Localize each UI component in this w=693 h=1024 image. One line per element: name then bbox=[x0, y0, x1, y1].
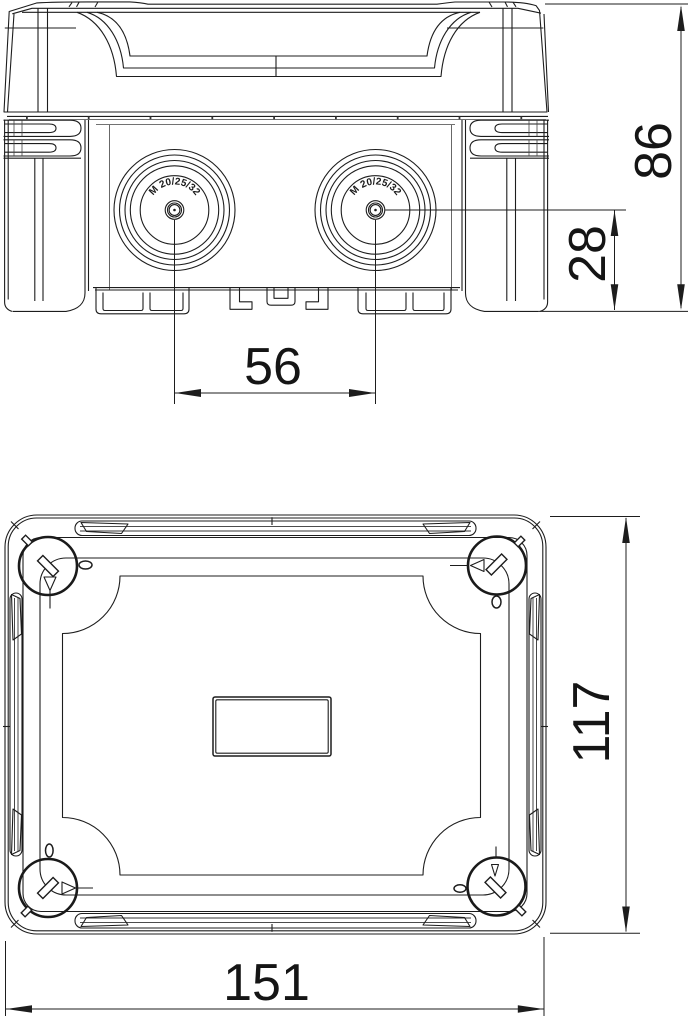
svg-text:M 20/25/32: M 20/25/32 bbox=[147, 176, 202, 198]
svg-text:86: 86 bbox=[625, 122, 683, 180]
svg-text:117: 117 bbox=[563, 681, 621, 764]
svg-text:151: 151 bbox=[223, 954, 310, 1012]
svg-text:28: 28 bbox=[559, 225, 617, 283]
svg-text:M 20/25/32: M 20/25/32 bbox=[348, 176, 403, 198]
svg-text:56: 56 bbox=[244, 338, 302, 396]
